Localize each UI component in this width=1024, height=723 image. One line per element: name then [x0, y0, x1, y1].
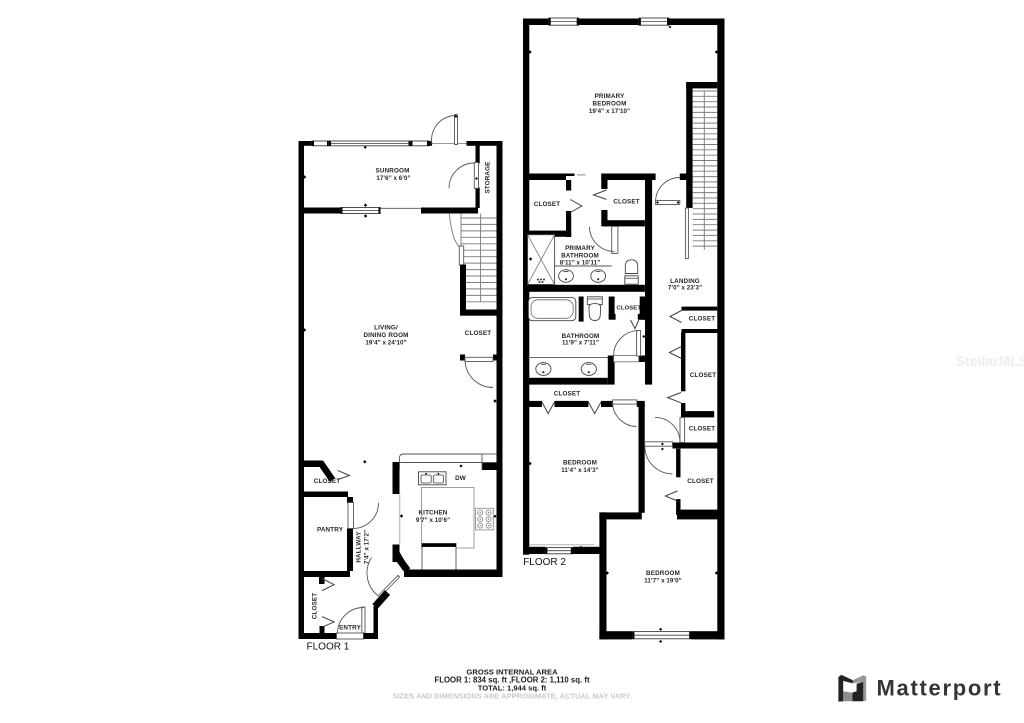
svg-text:DINING ROOM: DINING ROOM [363, 332, 408, 339]
svg-text:CLOSET: CLOSET [465, 330, 491, 337]
svg-text:8’11” x 10’11”: 8’11” x 10’11” [560, 259, 601, 266]
svg-text:PRIMARY: PRIMARY [565, 245, 596, 252]
svg-text:CLOSET: CLOSET [613, 198, 639, 205]
svg-text:KITCHEN: KITCHEN [418, 509, 447, 516]
svg-text:CLOSET: CLOSET [687, 478, 713, 485]
svg-text:ENTRY: ENTRY [339, 625, 362, 632]
svg-text:9’7” x 10’6”: 9’7” x 10’6” [416, 517, 450, 524]
svg-text:CLOSET: CLOSET [314, 478, 340, 485]
svg-text:11’7” x 19’0”: 11’7” x 19’0” [644, 577, 681, 584]
svg-text:CLOSET: CLOSET [689, 316, 715, 323]
svg-text:CLOSET: CLOSET [690, 372, 716, 379]
svg-text:11’4” x 14’3”: 11’4” x 14’3” [561, 467, 598, 474]
svg-text:BEDROOM: BEDROOM [646, 570, 680, 577]
svg-text:CLOSET: CLOSET [689, 425, 715, 432]
svg-text:FLOOR 1: FLOOR 1 [307, 641, 350, 652]
svg-text:CLOSET: CLOSET [311, 593, 318, 619]
svg-text:11’9” x 7’11”: 11’9” x 7’11” [562, 339, 599, 346]
svg-text:CLOSET: CLOSET [554, 390, 580, 397]
svg-text:7’4” x 17’2”: 7’4” x 17’2” [364, 530, 371, 564]
svg-text:BATHROOM: BATHROOM [561, 252, 599, 259]
svg-text:StellarMLS: StellarMLS [956, 353, 1024, 369]
svg-text:PANTRY: PANTRY [317, 527, 344, 534]
svg-text:SUNROOM: SUNROOM [376, 167, 410, 174]
svg-text:HALLWAY: HALLWAY [356, 531, 363, 563]
svg-text:FLOOR 2: FLOOR 2 [523, 557, 566, 568]
svg-text:7’0” x 23’3”: 7’0” x 23’3” [668, 285, 702, 292]
svg-text:19’4” x 24’10”: 19’4” x 24’10” [365, 339, 406, 346]
svg-text:STORAGE: STORAGE [485, 161, 492, 193]
svg-text:19’4” x 17’10”: 19’4” x 17’10” [589, 108, 630, 115]
svg-text:CLOSET: CLOSET [617, 305, 642, 311]
svg-text:SIZES AND DIMENSIONS ARE APPRO: SIZES AND DIMENSIONS ARE APPROXIMATE, AC… [392, 692, 631, 701]
svg-text:Matterport: Matterport [877, 676, 1003, 701]
svg-text:BEDROOM: BEDROOM [593, 100, 627, 107]
svg-text:DW: DW [455, 475, 466, 482]
svg-text:CLOSET: CLOSET [534, 201, 560, 208]
svg-text:LIVING/: LIVING/ [374, 325, 398, 332]
svg-text:BEDROOM: BEDROOM [563, 459, 597, 466]
svg-text:PRIMARY: PRIMARY [595, 93, 626, 100]
svg-text:17’6” x 6’0”: 17’6” x 6’0” [376, 175, 410, 182]
